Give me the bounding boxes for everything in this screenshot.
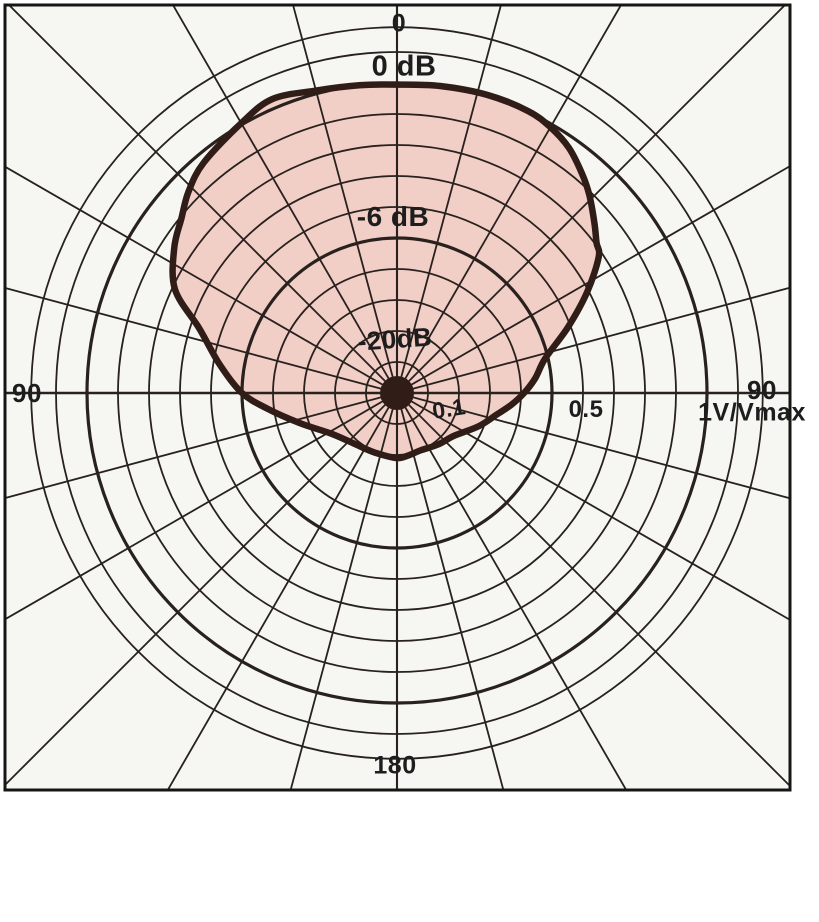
angle-label-right-90: 90 [747, 377, 777, 403]
level-label-minus6db: -6 dB [357, 203, 430, 231]
radial-tick-0-5: 0.5 [569, 398, 604, 422]
angle-label-bottom-180: 180 [373, 754, 416, 779]
polar-pattern-chart: 0 0 dB -6 dB -20dB 0.1 0.5 1V/Vmax 90 90… [0, 0, 819, 922]
angle-label-top: 0 [392, 12, 406, 37]
polar-grid-canvas [0, 0, 819, 922]
level-label-0db: 0 dB [372, 53, 437, 82]
level-label-minus20db: -20dB [357, 323, 433, 354]
angle-label-left-90: 90 [12, 380, 42, 406]
radial-tick-0-1: 0.1 [431, 395, 468, 423]
